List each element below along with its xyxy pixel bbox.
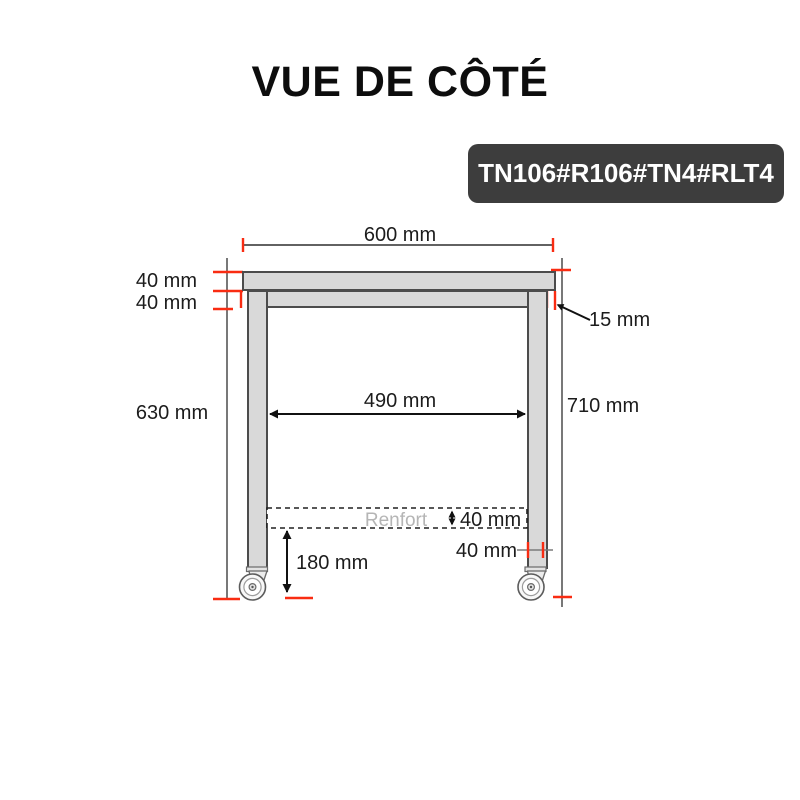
label-leg-height: 630 mm	[132, 402, 212, 425]
label-top-width: 600 mm	[340, 224, 460, 247]
label-renfort: Renfort	[356, 510, 436, 532]
label-renfort-height: 40 mm	[460, 509, 521, 532]
label-inner-width: 490 mm	[340, 390, 460, 413]
table-leg-left	[248, 291, 267, 568]
label-frame-height: 40 mm	[117, 292, 197, 315]
table-top	[243, 272, 555, 290]
caster-left	[240, 567, 268, 600]
label-caster-height: 180 mm	[296, 552, 368, 575]
table-leg-right	[528, 291, 547, 568]
label-leg-width: 40 mm	[437, 540, 517, 563]
caster-right	[518, 567, 546, 600]
label-total-height: 710 mm	[563, 395, 643, 418]
label-top-thickness: 40 mm	[117, 270, 197, 293]
page: VUE DE CÔTÉ TN106#R106#TN4#RLT4	[0, 0, 800, 800]
table-frame	[267, 291, 528, 307]
label-overhang: 15 mm	[589, 309, 650, 332]
leader-arrow-15mm	[558, 305, 590, 320]
